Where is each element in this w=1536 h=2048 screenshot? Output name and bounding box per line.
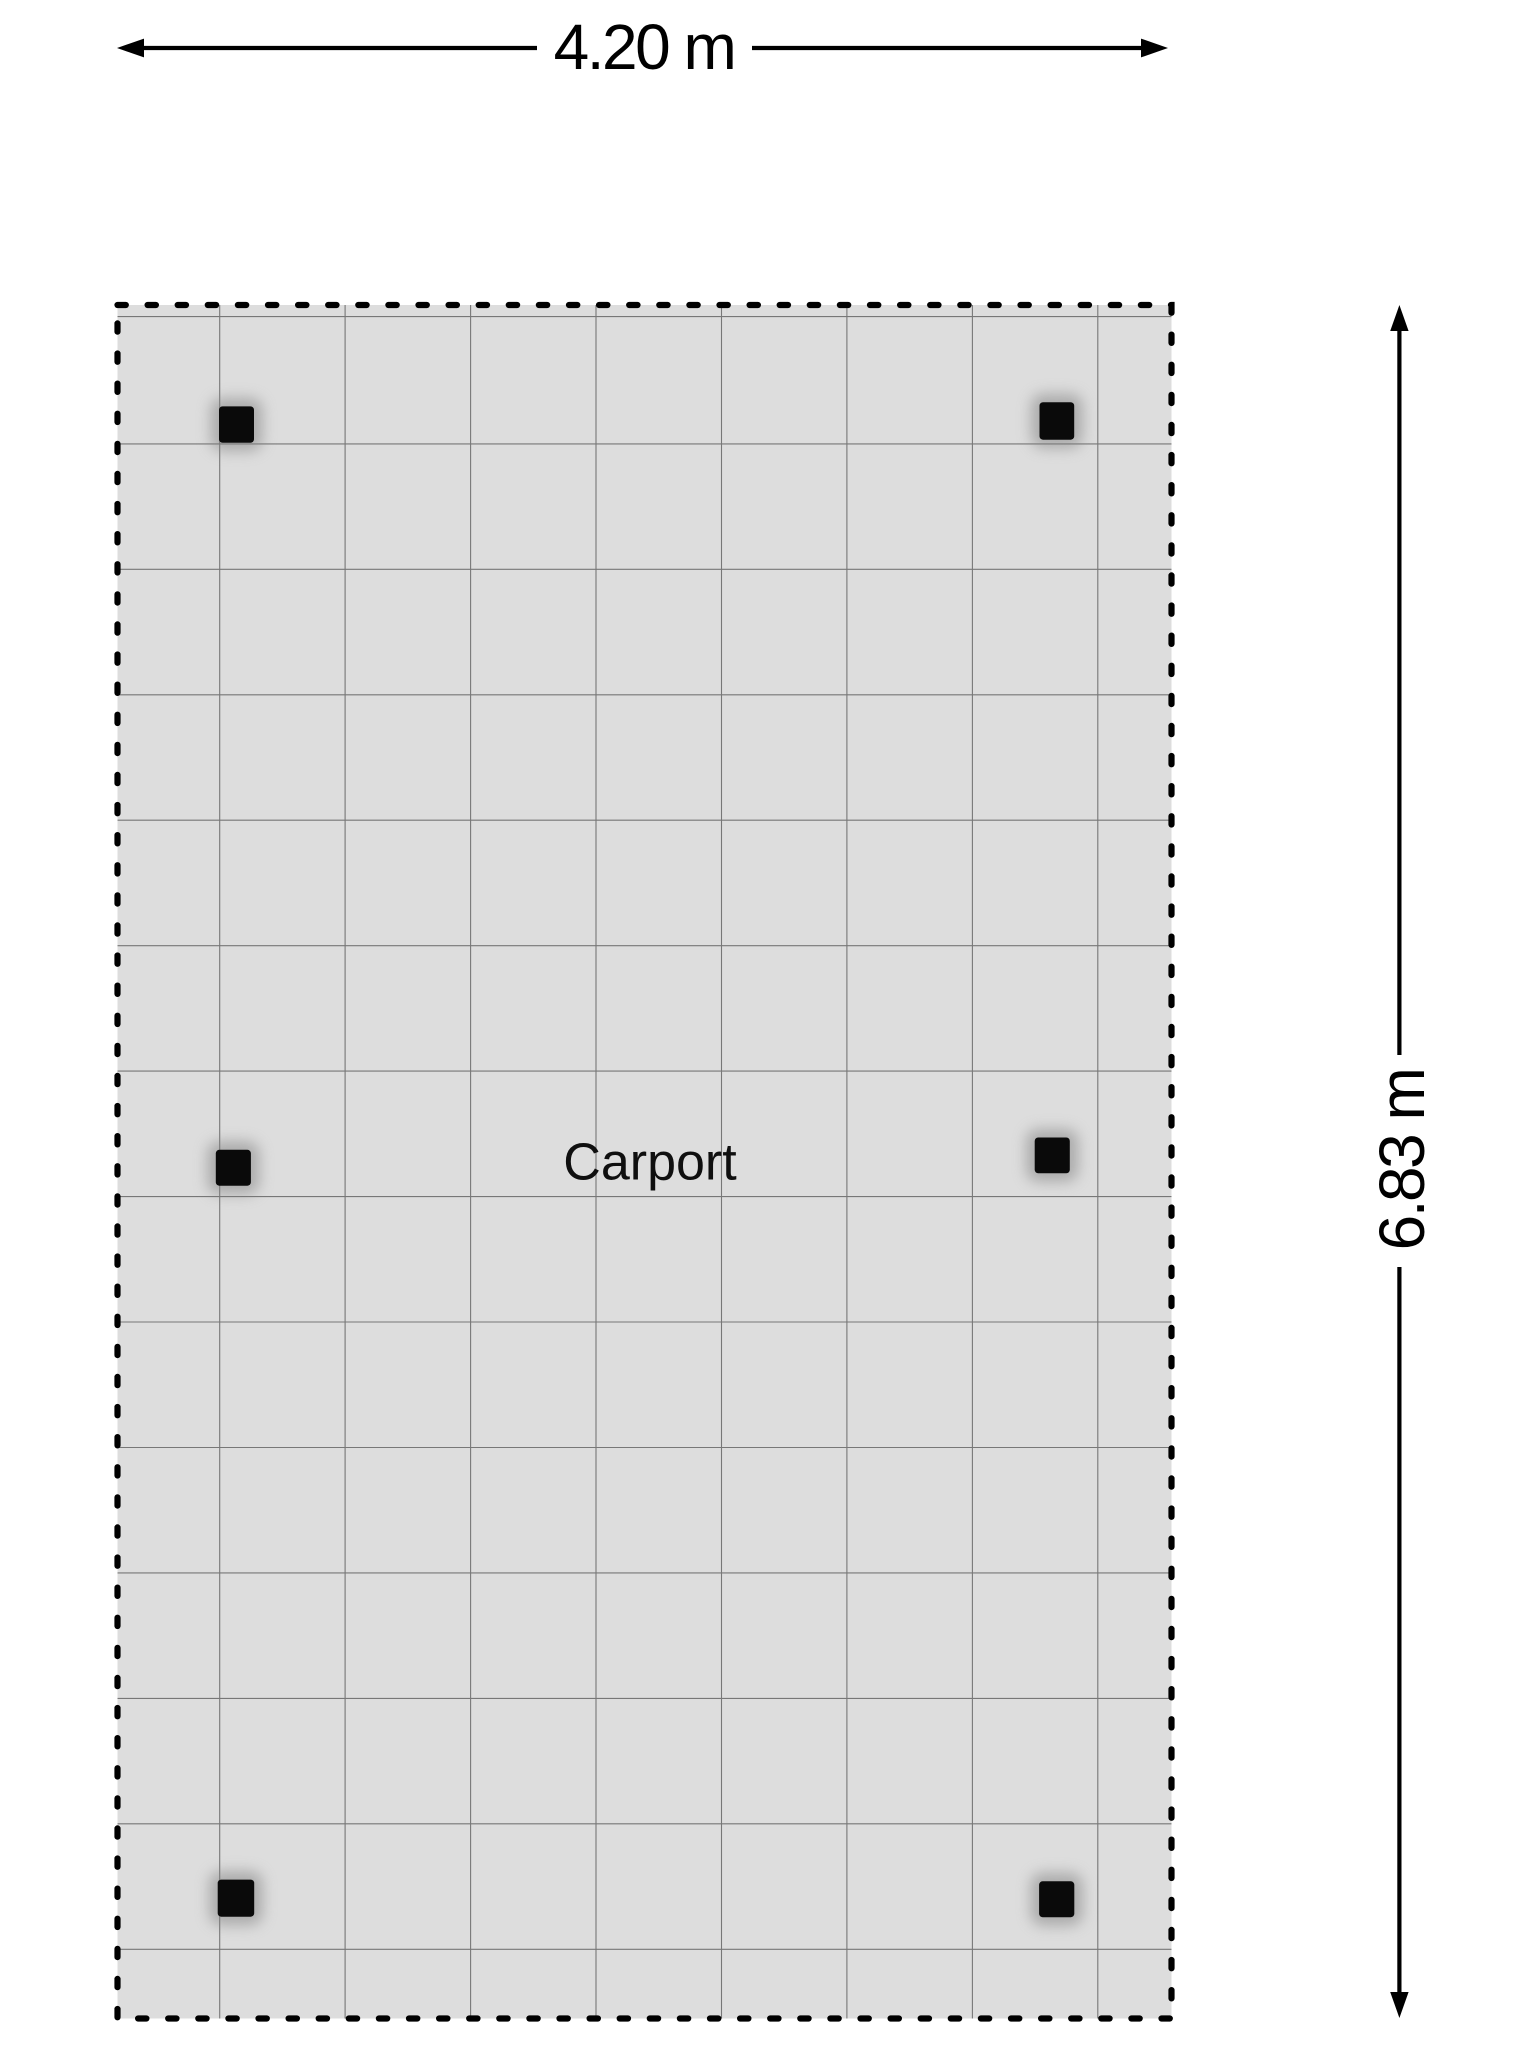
svg-text:6.83 m: 6.83 m bbox=[1366, 1070, 1438, 1251]
svg-text:4.20 m: 4.20 m bbox=[554, 11, 735, 83]
svg-text:Carport: Carport bbox=[563, 1133, 737, 1191]
